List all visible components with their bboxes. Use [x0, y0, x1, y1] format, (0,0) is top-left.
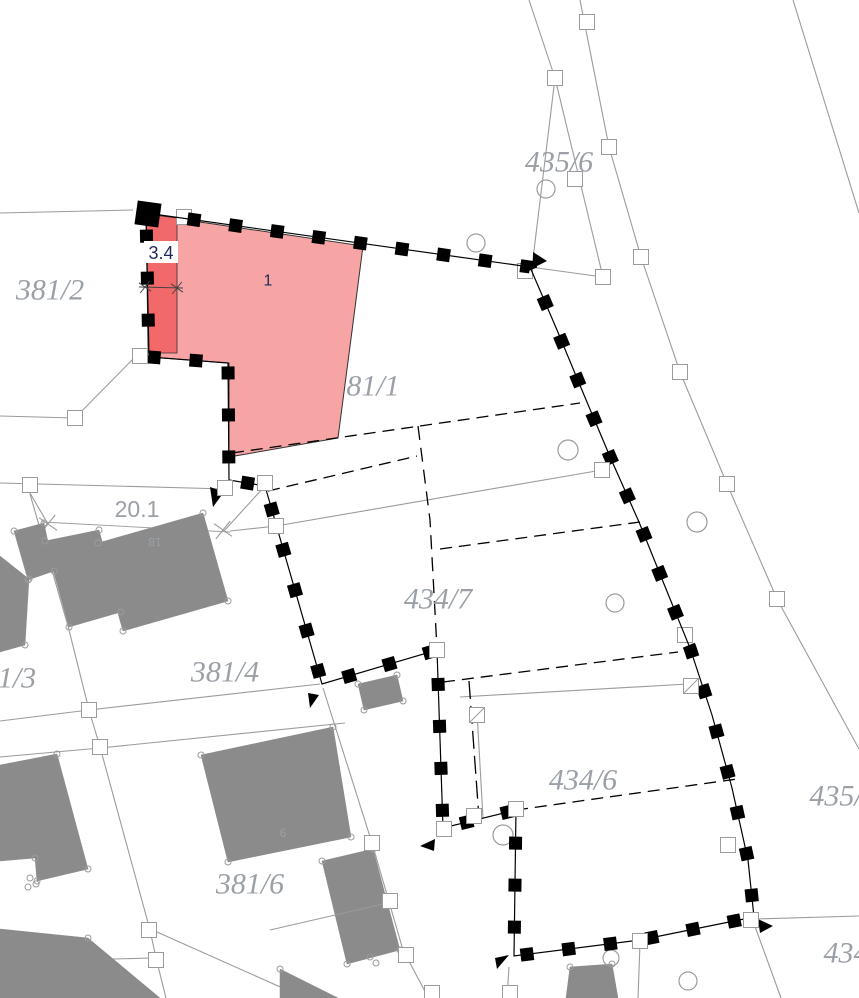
map-canvas[interactable]: 20.11381/2435/681/1434/7381/41/3381/6434…	[0, 0, 859, 998]
boundary-point-marker	[82, 703, 97, 718]
building-number-label: 18	[148, 535, 162, 549]
parcel-label-381-2: 381/2	[15, 274, 84, 307]
parcel-line	[753, 921, 781, 998]
building-corner-circle	[27, 875, 33, 881]
boundary-point-marker	[93, 740, 108, 755]
boundary-point-marker	[673, 365, 688, 380]
parcel-line	[530, 267, 603, 277]
boundary-point-marker	[133, 349, 148, 364]
boundary-arrow-flag	[420, 839, 435, 851]
building	[280, 969, 338, 998]
parcel-line	[460, 684, 688, 697]
boundary-point-marker	[633, 934, 648, 949]
boundary-point-marker	[580, 15, 595, 30]
boundary-point-marker	[218, 481, 233, 496]
parcel-label-435-6: 435/6	[525, 146, 593, 179]
parcel-label-434-7: 434/7	[404, 583, 474, 616]
building-number-label: 6	[280, 826, 287, 840]
boundary-point-marker	[68, 411, 83, 426]
proposed-division-line	[268, 456, 417, 491]
boundary-point-marker	[634, 250, 649, 265]
boundary-point-marker	[142, 923, 157, 938]
boundary-point-marker	[720, 477, 735, 492]
new-parcel-number: 1	[264, 273, 273, 290]
parcel-label-435: 435/	[809, 780, 859, 813]
boundary-point-marker	[721, 838, 736, 853]
boundary-arrow-flag	[758, 919, 773, 933]
building-corner-circle	[25, 884, 31, 890]
parcel-line	[529, 0, 555, 267]
width-measurement-label: 3.4	[148, 243, 173, 263]
boundary-point-marker	[437, 822, 452, 837]
building-corner-circle	[373, 960, 379, 966]
parcel-label-381-1: 81/1	[346, 370, 399, 403]
boundary-point-marker	[596, 270, 611, 285]
boundary-point-marker	[770, 592, 785, 607]
boundary-point-marker	[595, 463, 610, 478]
point-circle-marker	[558, 440, 578, 460]
boundary-point-marker	[365, 836, 380, 851]
new-parcel-1[interactable]	[146, 214, 363, 457]
boundary-arrow-flag	[495, 955, 509, 969]
boundary-arrow-flag	[533, 252, 547, 268]
parcel-label-381-6: 381/6	[215, 868, 284, 901]
building	[201, 727, 351, 862]
parcel-line	[0, 684, 320, 721]
boundary-point-marker	[509, 802, 524, 817]
buildings-layer	[0, 513, 618, 998]
boundary-point-marker	[430, 643, 445, 658]
point-circle-marker	[606, 594, 624, 612]
parcel-line	[638, 943, 640, 998]
parcel-label-434: 434	[824, 937, 859, 970]
boundary-arrow-flag	[308, 693, 319, 708]
building	[0, 556, 29, 652]
building	[358, 675, 403, 710]
boundary-point-marker	[744, 913, 759, 928]
building	[566, 964, 618, 998]
boundary-point-marker	[467, 809, 482, 824]
parcel-line	[580, 0, 859, 749]
boundary-point-marker	[399, 948, 414, 963]
point-circle-marker	[537, 180, 555, 198]
map-viewport[interactable]: 20.11381/2435/681/1434/7381/41/3381/6434…	[0, 0, 859, 998]
point-circle-marker	[467, 234, 485, 252]
parcel-line	[477, 712, 483, 818]
boundary-point-marker	[383, 894, 398, 909]
proposed-division-line	[443, 652, 678, 682]
point-circle-marker	[679, 972, 697, 990]
parcel-line	[793, 0, 859, 213]
parcel-line	[0, 357, 135, 418]
point-circle-marker	[687, 512, 707, 532]
building	[0, 754, 88, 881]
parcel-line	[754, 916, 859, 919]
parcel-line	[0, 210, 133, 213]
boundary-point-marker	[269, 519, 284, 534]
parcel-line	[230, 470, 602, 531]
boundary-point-marker	[548, 71, 563, 86]
parcel-label-381-4: 381/4	[190, 656, 259, 689]
boundary-point-marker	[23, 478, 38, 493]
boundary-point-marker	[503, 986, 518, 998]
building	[0, 929, 160, 998]
boundary-point-marker	[149, 953, 164, 968]
proposed-division-line	[440, 522, 640, 549]
boundary-point-marker	[425, 986, 440, 998]
proposed-division-line	[418, 426, 437, 649]
highlight-layer: 1	[146, 214, 363, 457]
boundary-point-marker	[258, 476, 273, 491]
parcel-label-434-6: 434/6	[549, 764, 617, 797]
point-circle-marker	[603, 950, 619, 966]
boundary-corner-mark	[134, 200, 161, 227]
point-circles-layer	[467, 180, 707, 990]
proposed-division-line	[469, 681, 479, 818]
length-measurement-label: 20.1	[115, 496, 160, 522]
boundary-point-marker	[602, 140, 617, 155]
parcel-label-381-3: 1/3	[0, 662, 36, 695]
